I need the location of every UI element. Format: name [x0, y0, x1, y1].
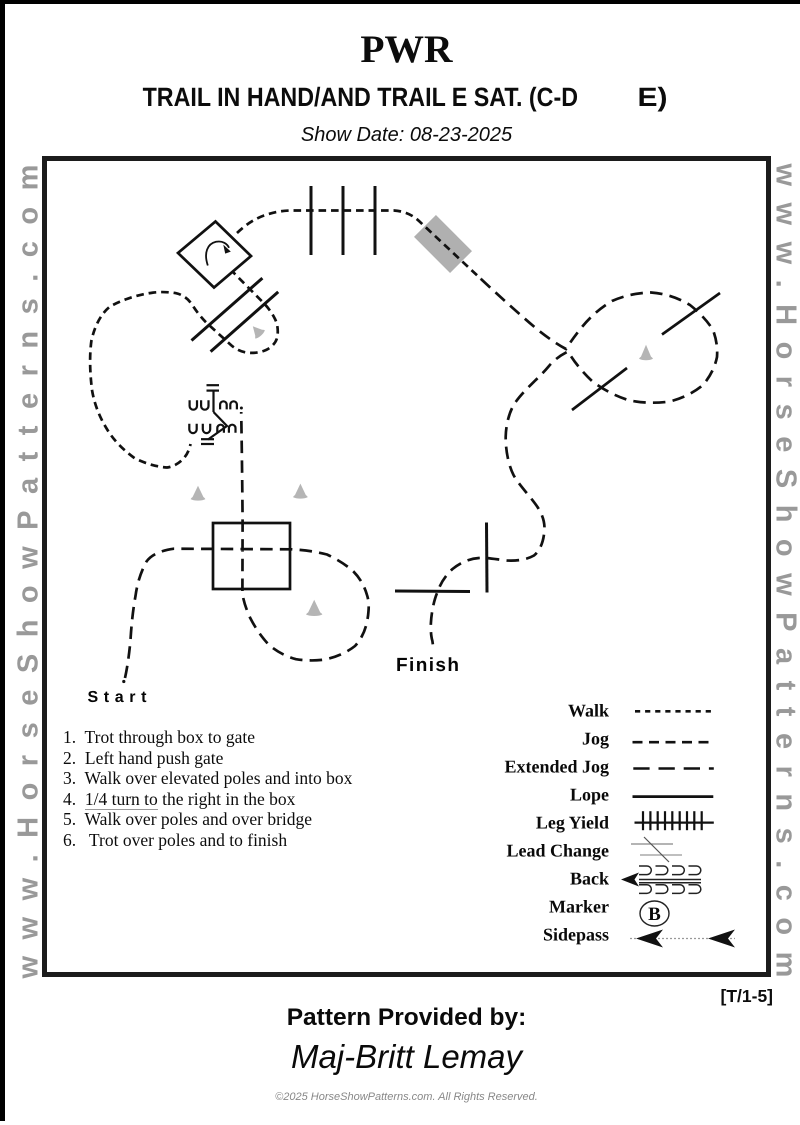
svg-text:Lope: Lope — [570, 785, 609, 805]
svg-text:Finish: Finish — [396, 655, 459, 676]
svg-text:Walk: Walk — [568, 701, 609, 721]
svg-text:B: B — [648, 904, 661, 925]
svg-text:Back: Back — [570, 869, 609, 889]
svg-text:Leg Yield: Leg Yield — [536, 813, 609, 833]
svg-text:Marker: Marker — [549, 897, 609, 917]
svg-text:Lead Change: Lead Change — [506, 841, 609, 861]
svg-text:Jog: Jog — [582, 729, 609, 749]
svg-text:Sidepass: Sidepass — [543, 925, 609, 945]
svg-text:Extended Jog: Extended Jog — [504, 757, 609, 777]
svg-text:Start: Start — [88, 689, 148, 706]
